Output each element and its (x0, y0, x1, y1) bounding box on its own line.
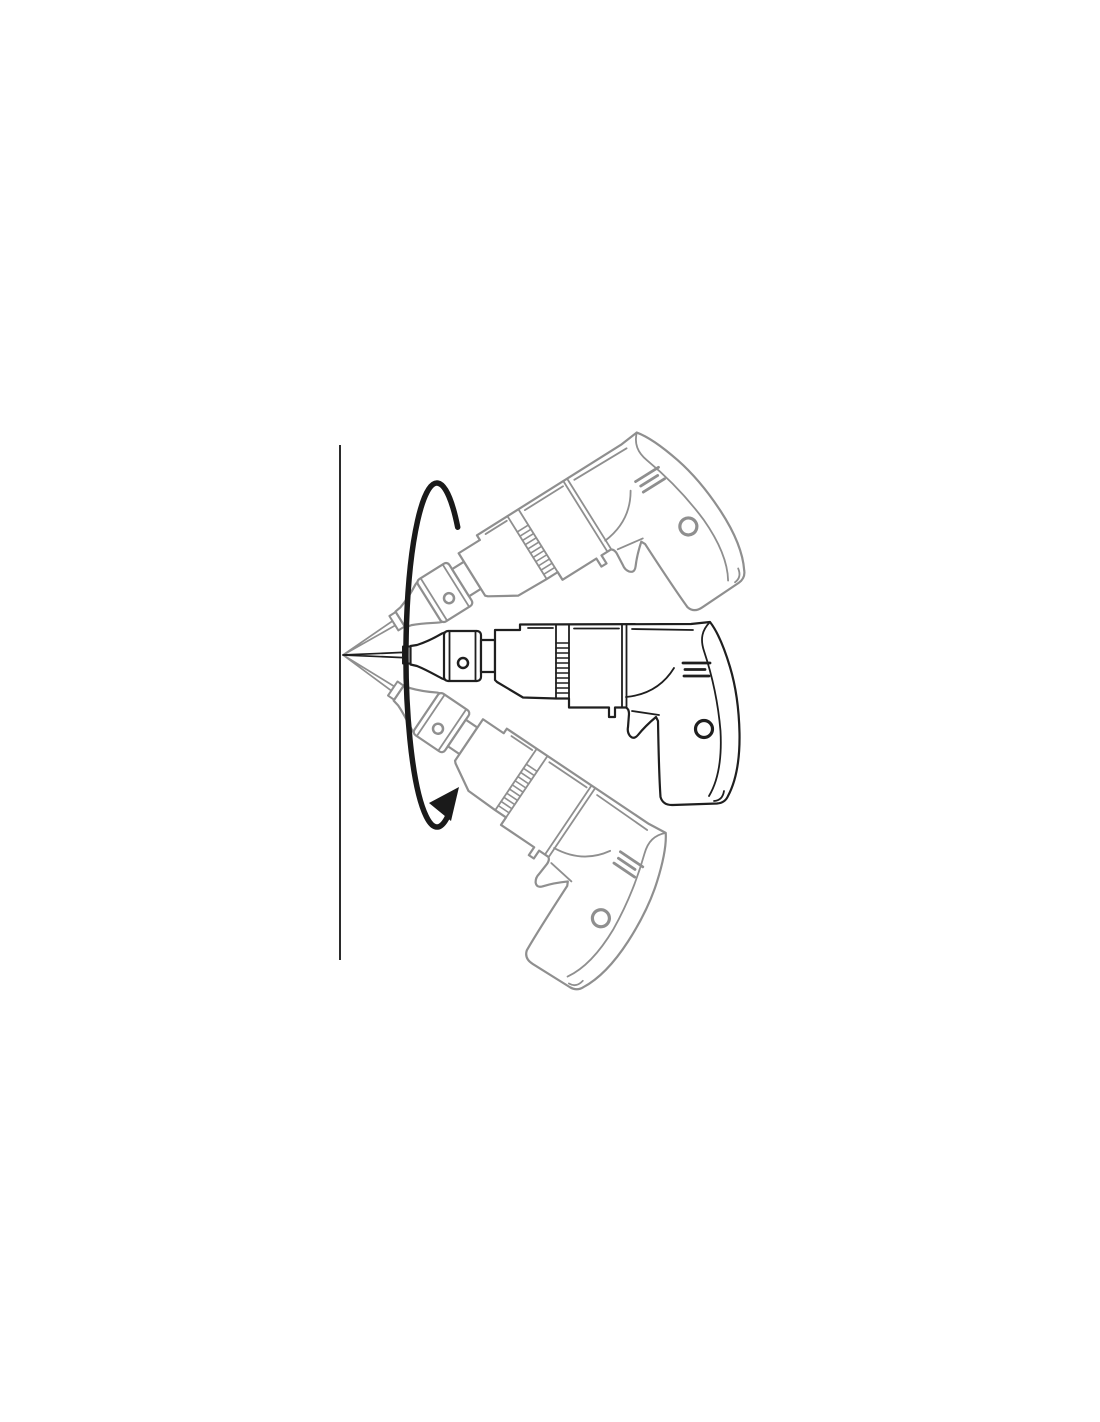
drill-rotation-diagram (0, 0, 1100, 1422)
rotation-arrowhead-icon (429, 787, 459, 821)
diagram-canvas (0, 0, 1100, 1422)
